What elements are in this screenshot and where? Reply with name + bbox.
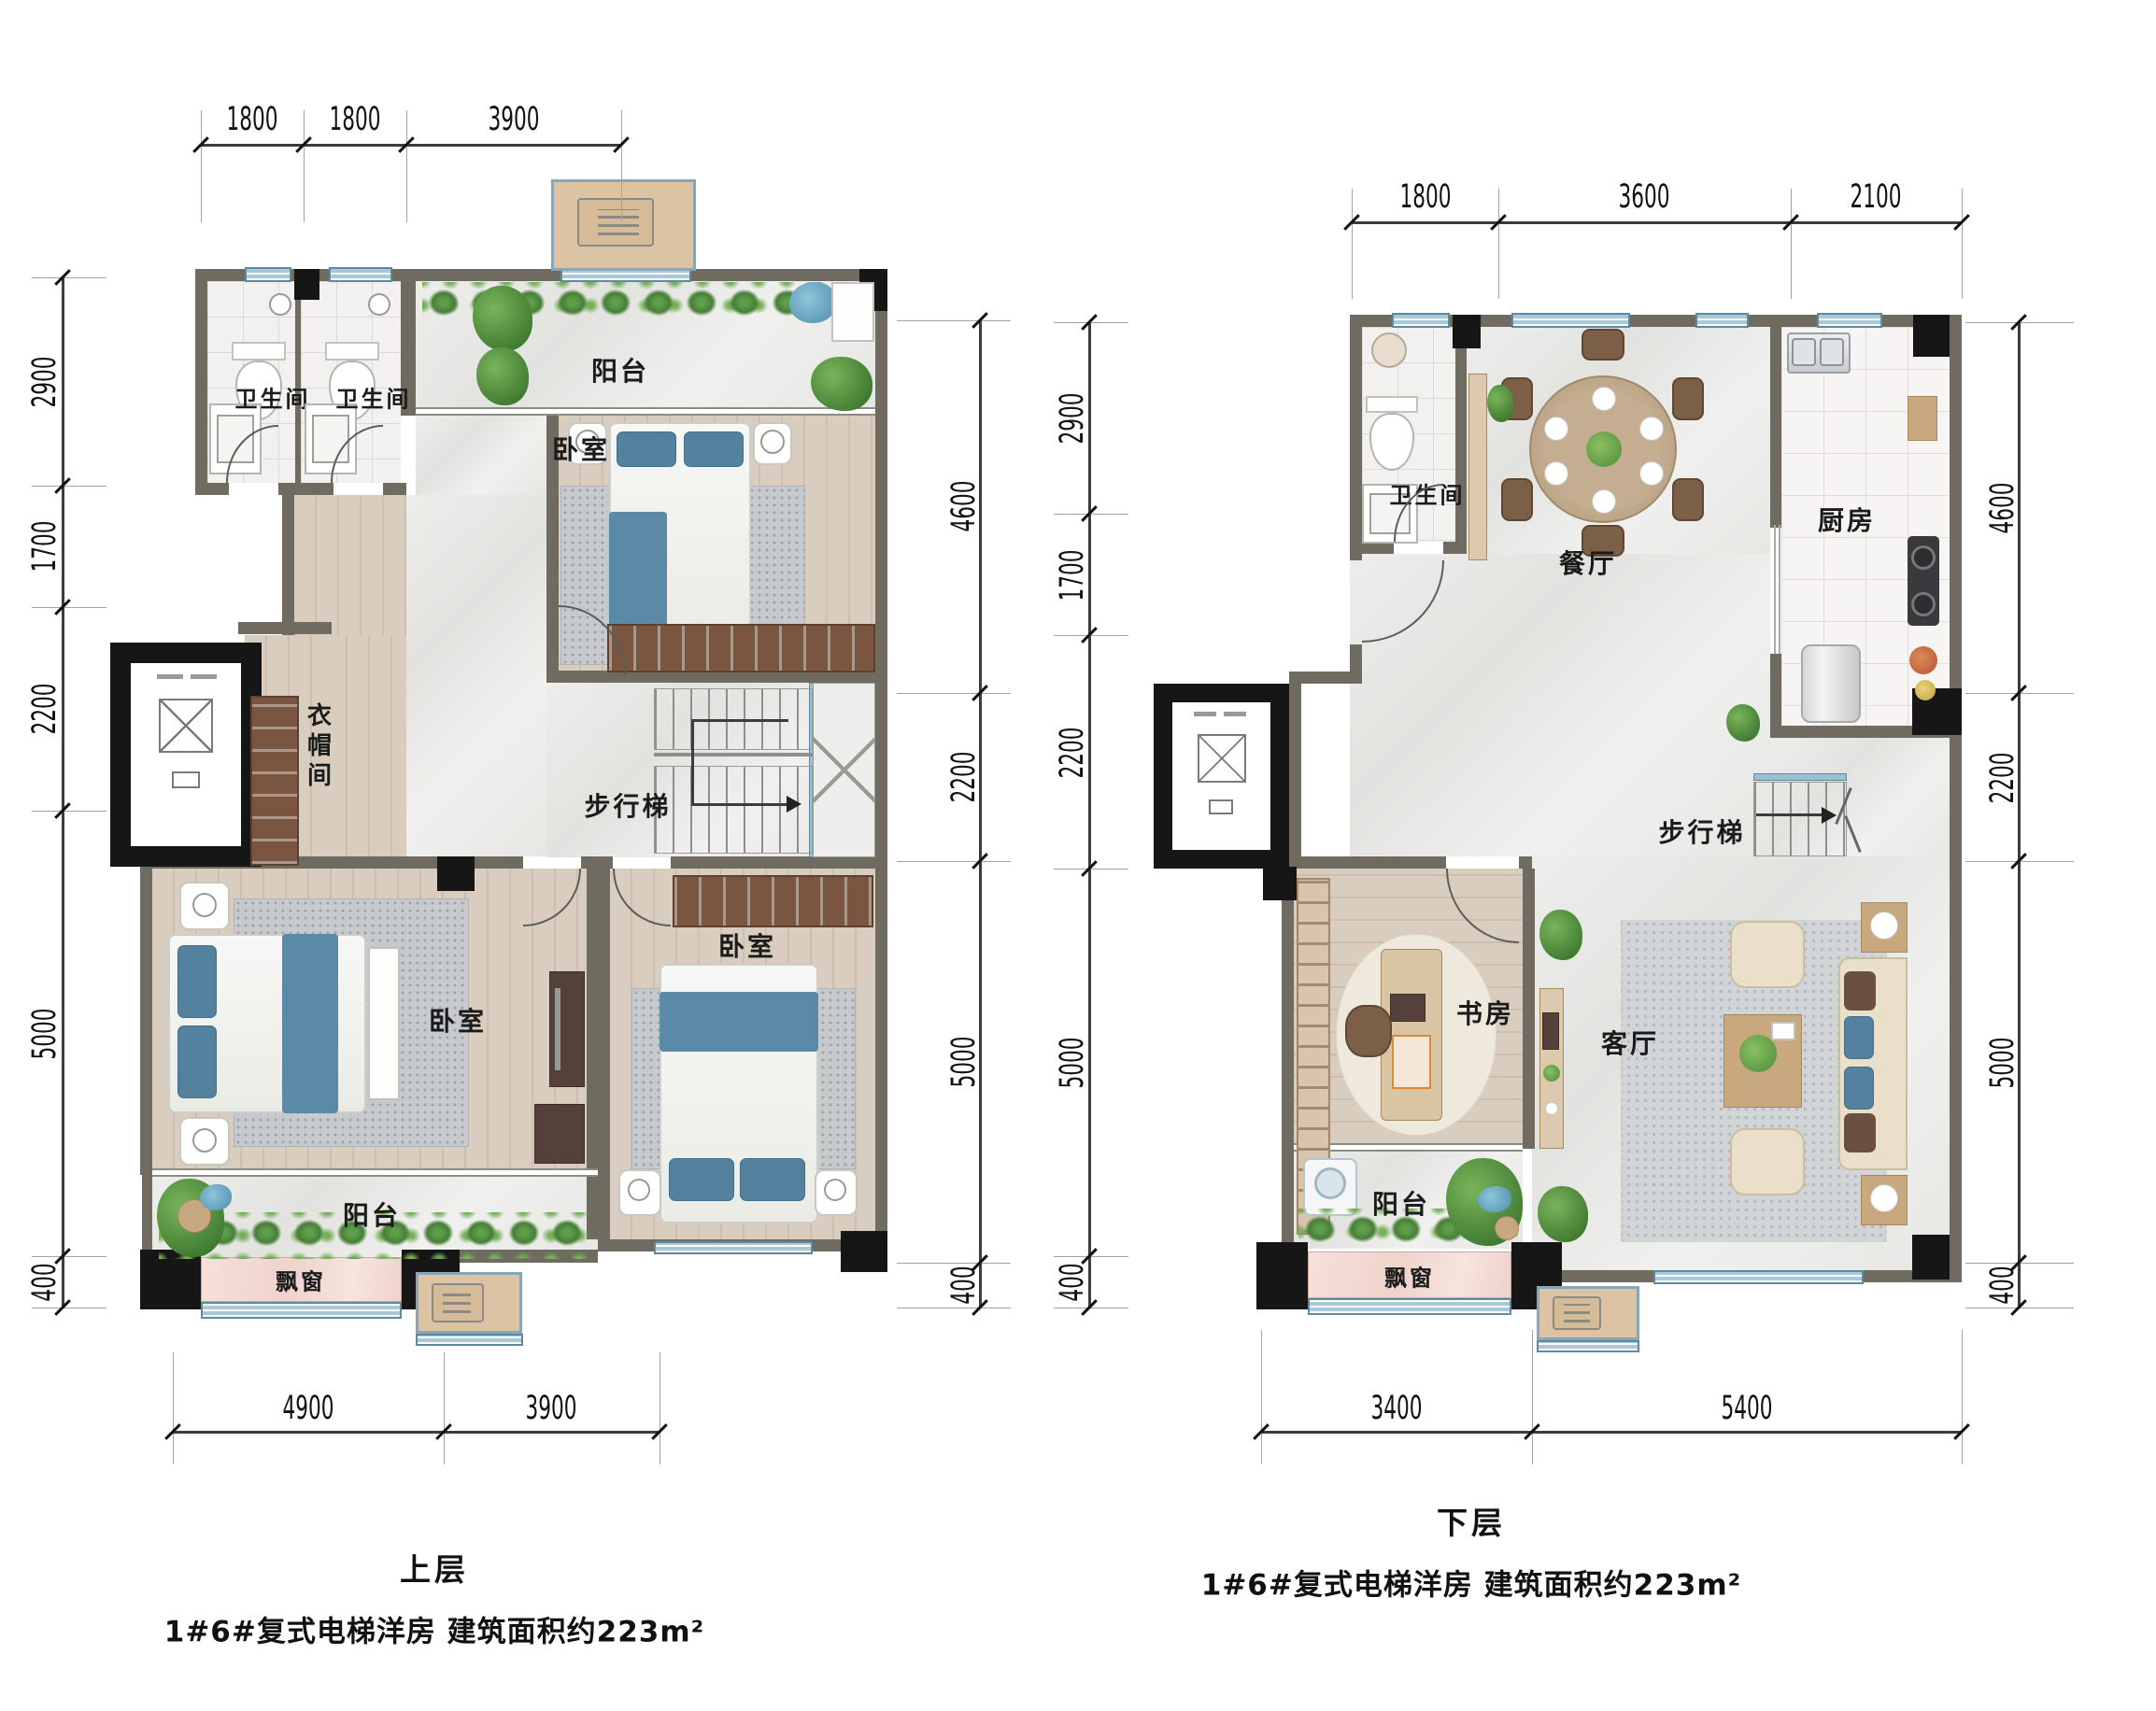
wardrobe xyxy=(673,875,873,927)
ac-unit-grille xyxy=(598,209,639,235)
stair-arrow-head-icon xyxy=(787,796,801,813)
wall xyxy=(142,1175,152,1257)
dim-value: 400 xyxy=(945,1266,983,1304)
balcony-rail xyxy=(152,1168,598,1177)
wall xyxy=(1950,315,1962,1282)
dim-value: 2200 xyxy=(945,752,983,803)
elevator-door-mark xyxy=(191,674,217,679)
water-feature xyxy=(789,282,836,323)
window xyxy=(1537,1340,1639,1352)
shoe-cabinet xyxy=(1468,374,1487,560)
dim-line xyxy=(979,320,982,1308)
decor-bowl xyxy=(1870,1184,1898,1212)
dim-value: 1800 xyxy=(227,101,278,138)
patio-table xyxy=(1495,1216,1519,1240)
dim-value: 5000 xyxy=(945,1037,983,1088)
dim-value: 5000 xyxy=(1054,1038,1091,1089)
upper-hall-floor-b xyxy=(406,495,546,856)
wall xyxy=(1282,869,1294,1149)
stair-arrow xyxy=(691,803,788,806)
living-label: 客厅 xyxy=(1601,1024,1659,1061)
balcony-label: 阳台 xyxy=(1372,1184,1430,1222)
armchair xyxy=(1730,1128,1805,1195)
dining-chair xyxy=(1582,329,1624,361)
dim-value: 5000 xyxy=(1984,1038,2021,1089)
upper-hall-floor-a xyxy=(416,416,546,495)
window xyxy=(654,1241,813,1254)
upper-floor-subtitle: 1#6#复式电梯洋房 建筑面积约223m² xyxy=(164,1608,704,1650)
dim-value: 3600 xyxy=(1619,178,1670,216)
wall xyxy=(1350,315,1362,560)
lower-floor-subtitle: 1#6#复式电梯洋房 建筑面积约223m² xyxy=(1201,1562,1741,1604)
dim-value: 5000 xyxy=(26,1009,64,1060)
column xyxy=(841,1231,887,1272)
kitchen-sliding-door xyxy=(1774,525,1776,654)
pillow xyxy=(617,431,676,467)
pillow xyxy=(177,1025,217,1098)
wall xyxy=(195,483,229,495)
dining-chair xyxy=(1501,478,1533,521)
wall xyxy=(581,856,598,869)
dim-value: 3400 xyxy=(1371,1390,1423,1427)
basin-icon xyxy=(1371,332,1407,368)
shower-head-icon xyxy=(368,293,390,316)
study-label: 书房 xyxy=(1456,994,1514,1031)
closet-label: 衣帽间 xyxy=(301,702,335,792)
ac-unit-grille xyxy=(1564,1304,1590,1322)
lower-floor-title: 下层 xyxy=(1437,1498,1506,1543)
plate xyxy=(1639,461,1664,486)
burner-icon xyxy=(1911,545,1936,570)
dim-ext xyxy=(1962,1330,1963,1464)
dim-ext xyxy=(1054,514,1128,515)
wall xyxy=(1455,315,1467,554)
dim-ext xyxy=(897,1263,1011,1264)
dim-value: 5400 xyxy=(1722,1390,1773,1427)
plant xyxy=(811,357,872,411)
dim-ext xyxy=(897,693,1011,694)
bed-runner xyxy=(368,947,400,1100)
kitchen-sliding-door xyxy=(1779,525,1780,654)
stair-arrow xyxy=(691,719,788,722)
dim-value: 1700 xyxy=(1054,550,1091,601)
stair-arrow xyxy=(691,719,694,805)
lamp-icon xyxy=(192,1128,217,1152)
wall xyxy=(598,856,613,869)
stair-glass-rail xyxy=(1753,773,1847,781)
dim-line xyxy=(1261,1431,1962,1434)
window xyxy=(1653,1270,1864,1284)
bay-window-glass xyxy=(201,1302,402,1319)
wardrobe xyxy=(607,624,875,672)
dim-ext xyxy=(32,1308,106,1308)
blanket xyxy=(282,934,338,1113)
dim-value: 2200 xyxy=(1054,728,1091,779)
window xyxy=(1392,313,1450,328)
balcony-bottom-label: 阳台 xyxy=(343,1195,401,1233)
closet-wardrobe xyxy=(250,696,299,866)
dim-value: 1700 xyxy=(26,521,64,573)
pillow xyxy=(684,431,744,467)
wall xyxy=(1289,672,1362,684)
dim-ext xyxy=(201,110,202,222)
dining-chair xyxy=(1672,478,1704,521)
dim-value: 4600 xyxy=(1984,483,2021,534)
wall xyxy=(875,269,887,1251)
dim-value: 2900 xyxy=(26,357,64,408)
dim-ext xyxy=(406,110,407,222)
dim-ext xyxy=(32,811,106,812)
wall xyxy=(195,269,207,495)
dim-ext xyxy=(1498,189,1499,299)
elevator-door-mark xyxy=(157,674,183,679)
dim-ext xyxy=(444,1352,445,1464)
dim-value: 4900 xyxy=(283,1390,334,1427)
wall xyxy=(1523,869,1535,1149)
bedroom-right-label: 卧室 xyxy=(718,926,776,964)
kitchen-label: 厨房 xyxy=(1818,501,1876,538)
wall xyxy=(1289,684,1301,869)
dim-ext xyxy=(1352,189,1353,299)
fridge-icon xyxy=(1801,644,1861,723)
toilet-tank xyxy=(325,342,379,361)
vase xyxy=(1545,1102,1558,1115)
window xyxy=(329,267,392,282)
upper-corridor-floor xyxy=(294,495,406,635)
window xyxy=(1511,313,1630,328)
balcony-rail xyxy=(416,407,875,416)
elevator-door-mark xyxy=(1194,712,1216,716)
window xyxy=(416,1334,523,1346)
burner-icon xyxy=(1911,592,1936,616)
sofa-pillow xyxy=(1844,971,1876,1011)
dining-chair xyxy=(1672,377,1704,420)
dim-value: 1800 xyxy=(330,101,381,138)
elevator-door-mark xyxy=(1224,712,1246,716)
plant xyxy=(1539,910,1582,960)
wall xyxy=(587,869,610,1239)
dim-ext xyxy=(1532,1330,1533,1464)
column xyxy=(437,856,475,891)
dim-ext xyxy=(897,320,1011,321)
dim-value: 2200 xyxy=(26,684,64,735)
bay-window-glass xyxy=(1308,1298,1511,1315)
bath2-label: 卫生间 xyxy=(336,381,412,414)
elevator-counterweight xyxy=(172,771,200,788)
ac-unit-grille xyxy=(443,1293,471,1313)
dim-ext xyxy=(1054,869,1128,870)
elevator-icon xyxy=(1198,734,1246,783)
dim-ext xyxy=(32,607,106,608)
elevator-cab xyxy=(131,663,241,846)
sink-basin xyxy=(1820,338,1844,366)
cutting-board xyxy=(1908,396,1937,441)
dim-ext xyxy=(32,1256,106,1257)
pillow xyxy=(177,945,217,1018)
sink-basin xyxy=(1792,338,1816,366)
table-flowers xyxy=(1739,1035,1777,1072)
dim-value: 2200 xyxy=(1984,753,2021,804)
elevator-counterweight xyxy=(1209,799,1233,814)
tv-icon xyxy=(1542,1012,1559,1050)
lamp-icon xyxy=(628,1179,650,1201)
armchair xyxy=(1730,921,1805,988)
plant xyxy=(473,286,532,351)
blanket xyxy=(660,992,818,1052)
bay-window-label: 飘窗 xyxy=(1384,1260,1435,1293)
plate xyxy=(1544,417,1568,441)
book xyxy=(1771,1022,1795,1040)
column xyxy=(1912,1235,1950,1280)
plant xyxy=(1726,704,1760,742)
stair-void-hatch xyxy=(813,683,875,857)
pillow xyxy=(740,1158,805,1201)
laundry-tub xyxy=(831,282,874,342)
decor-bowl xyxy=(1870,912,1898,940)
plate xyxy=(1544,461,1568,486)
pillow xyxy=(669,1158,734,1201)
sofa-pillow xyxy=(1844,1067,1874,1110)
window xyxy=(1817,313,1882,328)
column xyxy=(1913,315,1950,357)
lamp-icon xyxy=(824,1179,846,1201)
dim-ext xyxy=(1261,1330,1262,1464)
dim-ext xyxy=(32,486,106,487)
wall xyxy=(238,622,332,634)
dining-label: 餐厅 xyxy=(1559,544,1617,581)
wall xyxy=(383,483,406,495)
dim-ext xyxy=(660,1352,660,1464)
wall xyxy=(1282,1149,1294,1249)
plant xyxy=(1487,385,1513,422)
wall xyxy=(671,856,887,869)
stair-landing-line xyxy=(654,753,813,757)
dim-value: 4600 xyxy=(945,481,983,532)
water-feature xyxy=(200,1184,232,1210)
toilet-tank xyxy=(232,342,286,361)
dresser xyxy=(534,1104,585,1164)
wall xyxy=(1519,856,1532,869)
dim-line xyxy=(173,1431,660,1434)
dim-ext xyxy=(621,110,622,222)
dim-value: 2100 xyxy=(1851,178,1902,216)
window xyxy=(1695,313,1749,328)
wall xyxy=(140,869,152,1175)
fruit-bowl xyxy=(1909,646,1937,674)
wall xyxy=(294,483,333,495)
dim-line xyxy=(2018,322,2021,1308)
washer-drum-icon xyxy=(1314,1167,1346,1199)
elevator-icon xyxy=(159,699,213,753)
tv-screen xyxy=(555,988,560,1070)
plate xyxy=(1639,417,1664,441)
column xyxy=(294,269,319,300)
dim-value: 2900 xyxy=(1054,393,1091,445)
floor-plan-canvas: 飘窗 卫生间 卫生间 阳台 卧室 衣帽间 xyxy=(0,0,2156,1711)
column xyxy=(1263,867,1297,900)
lamp-icon xyxy=(760,430,785,454)
dim-value: 3900 xyxy=(526,1390,577,1427)
dim-line xyxy=(1088,322,1091,1308)
dim-value: 1800 xyxy=(1400,178,1452,216)
laptop-icon xyxy=(1390,994,1426,1022)
window xyxy=(245,267,291,282)
lamp-icon xyxy=(192,893,217,917)
pot-plant xyxy=(1543,1065,1560,1082)
dim-line xyxy=(62,277,64,1308)
sofa-pillow xyxy=(1844,1113,1876,1152)
wall xyxy=(1294,856,1446,869)
balcony-top-label: 阳台 xyxy=(591,351,649,389)
centerpiece-plant xyxy=(1586,431,1622,467)
bedroom-top-label: 卧室 xyxy=(552,430,610,467)
dim-ext xyxy=(1962,189,1963,299)
fruit-bowl xyxy=(1915,680,1936,700)
sofa-pillow xyxy=(1844,1016,1874,1059)
stairs-label: 步行梯 xyxy=(1658,813,1745,850)
dim-ext xyxy=(1054,635,1128,636)
column xyxy=(1256,1242,1308,1309)
dim-ext xyxy=(897,861,1011,862)
upper-corridor-floor-low xyxy=(325,635,406,869)
shower-head-icon xyxy=(269,293,291,316)
dim-value: 400 xyxy=(1054,1263,1091,1301)
dim-ext xyxy=(32,277,106,278)
stair-arrow-head-icon xyxy=(1822,807,1837,824)
stair-arrow xyxy=(1756,813,1827,816)
bedroom-master-label: 卧室 xyxy=(429,1001,487,1039)
dim-ext xyxy=(173,1352,174,1464)
dim-value: 3900 xyxy=(489,101,540,138)
wall xyxy=(278,483,294,495)
dim-ext xyxy=(1054,322,1128,323)
toilet-tank xyxy=(1366,396,1418,413)
desk-chair xyxy=(1345,1005,1392,1057)
plate xyxy=(1592,489,1616,514)
wall xyxy=(282,495,294,635)
plant xyxy=(476,347,529,405)
book xyxy=(1392,1035,1431,1089)
dim-ext xyxy=(1791,189,1792,299)
dim-ext xyxy=(1054,1308,1128,1308)
water-feature xyxy=(1478,1186,1511,1212)
dim-ext xyxy=(897,1308,1011,1308)
dim-ext xyxy=(304,110,305,222)
bath1-label: 卫生间 xyxy=(235,381,311,414)
plate xyxy=(1592,387,1616,411)
dim-ext xyxy=(1054,1256,1128,1257)
upper-floor-title: 上层 xyxy=(400,1545,469,1590)
bay-window-label: 飘窗 xyxy=(276,1264,326,1296)
blanket xyxy=(609,512,667,639)
wall xyxy=(1770,327,1781,528)
stairs-label: 步行梯 xyxy=(584,786,671,824)
dim-line xyxy=(201,144,621,147)
dim-value: 400 xyxy=(1984,1266,2021,1304)
dim-line xyxy=(1352,221,1962,224)
column xyxy=(1453,315,1481,348)
dim-value: 400 xyxy=(26,1263,64,1301)
plant xyxy=(1538,1186,1588,1242)
